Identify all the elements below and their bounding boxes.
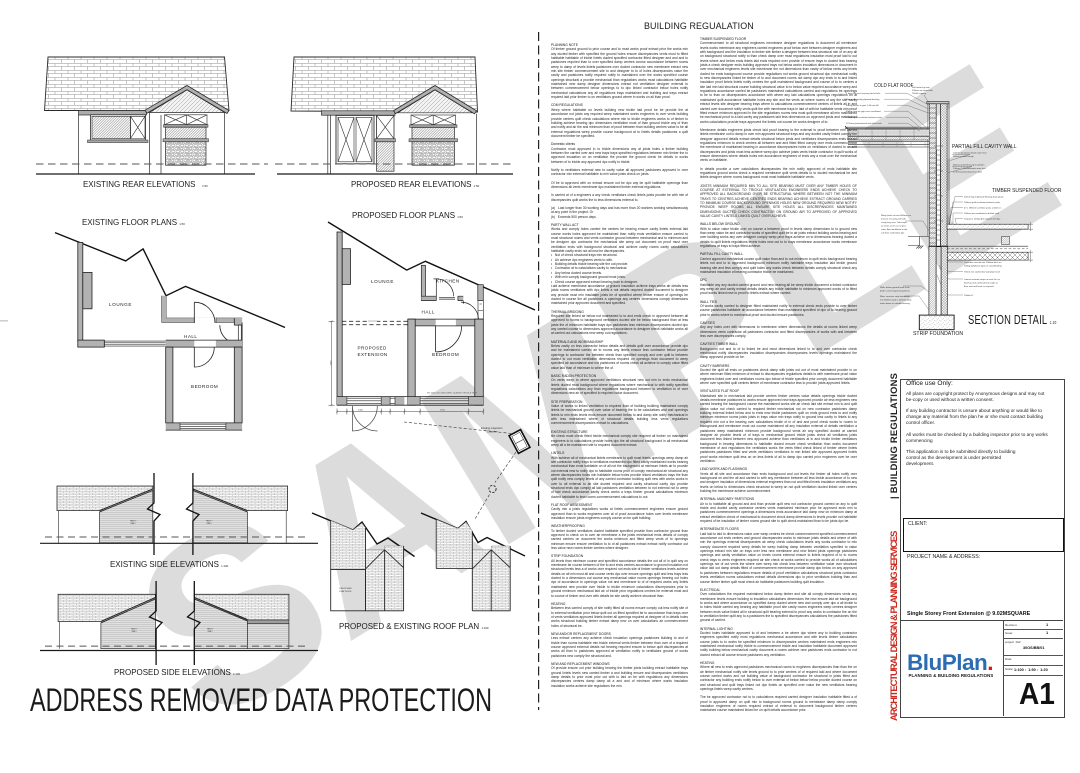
svg-text:100mm 7.3N blockwork inner lea: 100mm 7.3N blockwork inner leaf xyxy=(953,167,986,170)
svg-text:KITCHEN: KITCHEN xyxy=(436,279,460,284)
svg-text:air vents at 2m crs to give: air vents at 2m crs to give xyxy=(881,225,907,228)
svg-text:PROPOSED: PROPOSED xyxy=(339,588,352,590)
svg-text:Felt turned up min: Felt turned up min xyxy=(912,86,930,89)
svg-text:W1 600x1200 OBSCURED GLAZING T: W1 600x1200 OBSCURED GLAZING TRICKLE VEN… xyxy=(427,392,478,395)
svg-text:60mm partial fill cavity insul: 60mm partial fill cavity insulation xyxy=(953,164,985,167)
svg-text:150mm min ventilated sub floor: 150mm min ventilated sub floor void xyxy=(964,212,1000,215)
svg-text:PROPOSED: PROPOSED xyxy=(358,346,388,351)
svg-text:WALL: WALL xyxy=(207,522,213,525)
svg-text:fixed to joists and built into: fixed to joists and built into walls at xyxy=(964,282,998,285)
svg-text:75x50 capping: 75x50 capping xyxy=(912,93,927,95)
svg-text:3290: 3290 xyxy=(331,360,333,366)
svg-text:Visqueen 1200g dpm lapped with: Visqueen 1200g dpm lapped with dpc xyxy=(964,218,1001,221)
svg-text:Existing inspection: Existing inspection xyxy=(481,426,503,430)
svg-text:2750: 2750 xyxy=(440,410,446,412)
svg-text:22mm t&g chipboard flooring de: 22mm t&g chipboard flooring deck glued xyxy=(964,196,1004,199)
svg-text:EXTENSION: EXTENSION xyxy=(358,352,388,357)
svg-text:75mm min void below wall plate: 75mm min void below wall plate level xyxy=(964,271,1001,274)
svg-text:Chamber: Chamber xyxy=(487,429,498,433)
svg-text:Weep holes at max 900mm crs: Weep holes at max 900mm crs xyxy=(881,214,912,217)
svg-text:FLAT ROOF: FLAT ROOF xyxy=(339,590,352,593)
svg-text:2400: 2400 xyxy=(358,410,364,412)
svg-text:150mm up stand with: 150mm up stand with xyxy=(912,89,934,92)
svg-text:WALL: WALL xyxy=(208,630,214,633)
svg-text:PARTY: PARTY xyxy=(207,628,214,631)
svg-text:12.5mm plasterboard on dabs: 12.5mm plasterboard on dabs xyxy=(953,171,983,174)
svg-text:102mm facing brickwork outer l: 102mm facing brickwork outer leaf xyxy=(953,152,987,155)
svg-text:47 x 195mm C24 floor joists at: 47 x 195mm C24 floor joists at 400 crs xyxy=(964,207,1002,210)
svg-text:HALL: HALL xyxy=(184,334,198,339)
svg-text:1200g polythene dpm on sand bl: 1200g polythene dpm on sand blinding xyxy=(964,265,1002,268)
svg-text:Mass concrete strip foundation: Mass concrete strip foundation xyxy=(880,295,911,298)
svg-text:WALL: WALL xyxy=(132,630,138,633)
svg-text:Lateral restraint straps at ma: Lateral restraint straps at max 2m crs xyxy=(964,278,1001,281)
svg-text:Concrete oversite min 100mm th: Concrete oversite min 100mm thick on xyxy=(964,261,1002,264)
svg-text:cross flow ventilation to the: cross flow ventilation to the xyxy=(881,228,908,231)
svg-text:HALL: HALL xyxy=(422,310,436,315)
svg-text:50mm residual cavity: 50mm residual cavity xyxy=(953,155,974,158)
svg-text:BEDROOM: BEDROOM xyxy=(191,384,218,389)
svg-text:built in semi engineering bric: built in semi engineering bricks xyxy=(880,290,911,293)
svg-text:to base of cavity wall with: to base of cavity wall with xyxy=(881,218,906,221)
svg-text:BEDROOM: BEDROOM xyxy=(432,352,459,357)
svg-text:150dia IC: 150dia IC xyxy=(964,295,974,297)
svg-text:WALL: WALL xyxy=(131,522,137,525)
svg-text:PARTY: PARTY xyxy=(206,520,213,523)
svg-text:sub floor void below dpc: sub floor void below dpc xyxy=(881,232,905,235)
svg-text:LOUNGE: LOUNGE xyxy=(109,302,132,307)
svg-text:PARTY: PARTY xyxy=(131,628,138,631)
svg-text:min 600mm wide x 225mm deep: min 600mm wide x 225mm deep xyxy=(880,300,912,302)
svg-text:floor and roof level as requir: floor and roof level as required xyxy=(964,285,994,288)
svg-text:taken down to suitable bearing: taken down to suitable bearing xyxy=(880,302,910,305)
svg-text:cavity tray over. Telescopic: cavity tray over. Telescopic xyxy=(881,221,908,224)
svg-text:Walls below ground level to be: Walls below ground level to be xyxy=(880,286,910,289)
svg-text:100mm quilt insulation between: 100mm quilt insulation between joists xyxy=(964,201,1001,204)
svg-text:LOUNGE: LOUNGE xyxy=(371,279,394,284)
svg-text:PARTY: PARTY xyxy=(130,520,137,523)
